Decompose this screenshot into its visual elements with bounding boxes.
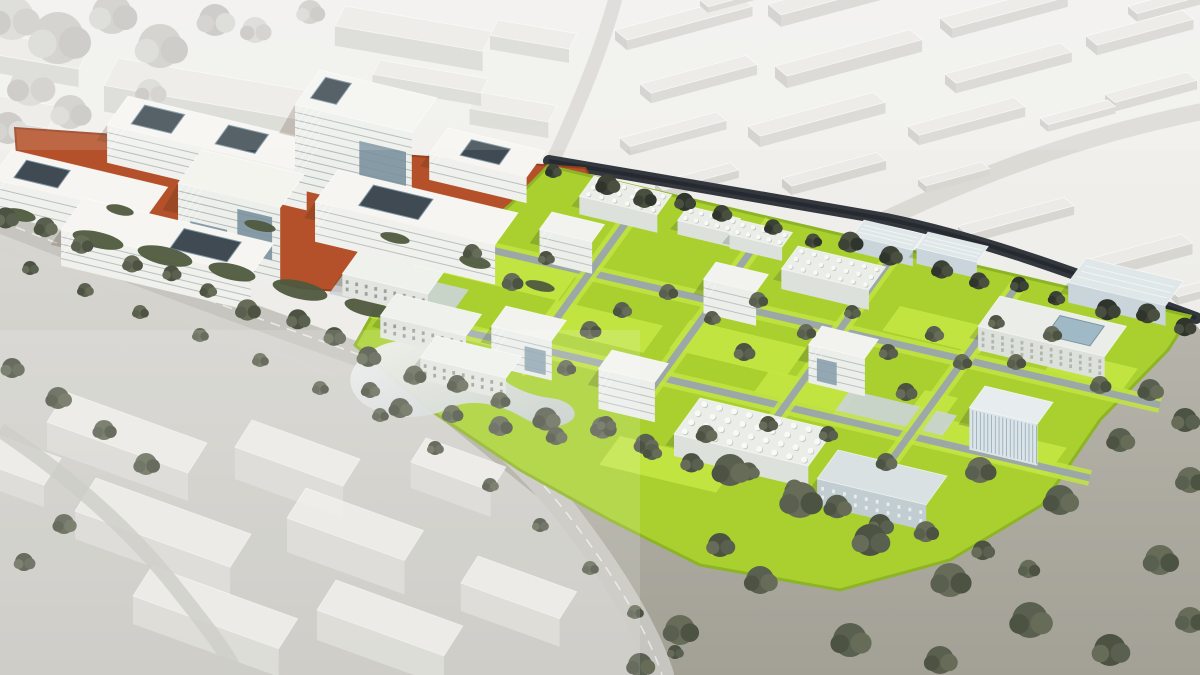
top-haze bbox=[0, 0, 1200, 150]
masterplan-rendering bbox=[0, 0, 1200, 675]
foreground-haze bbox=[0, 330, 640, 675]
rendering-canvas bbox=[0, 0, 1200, 675]
